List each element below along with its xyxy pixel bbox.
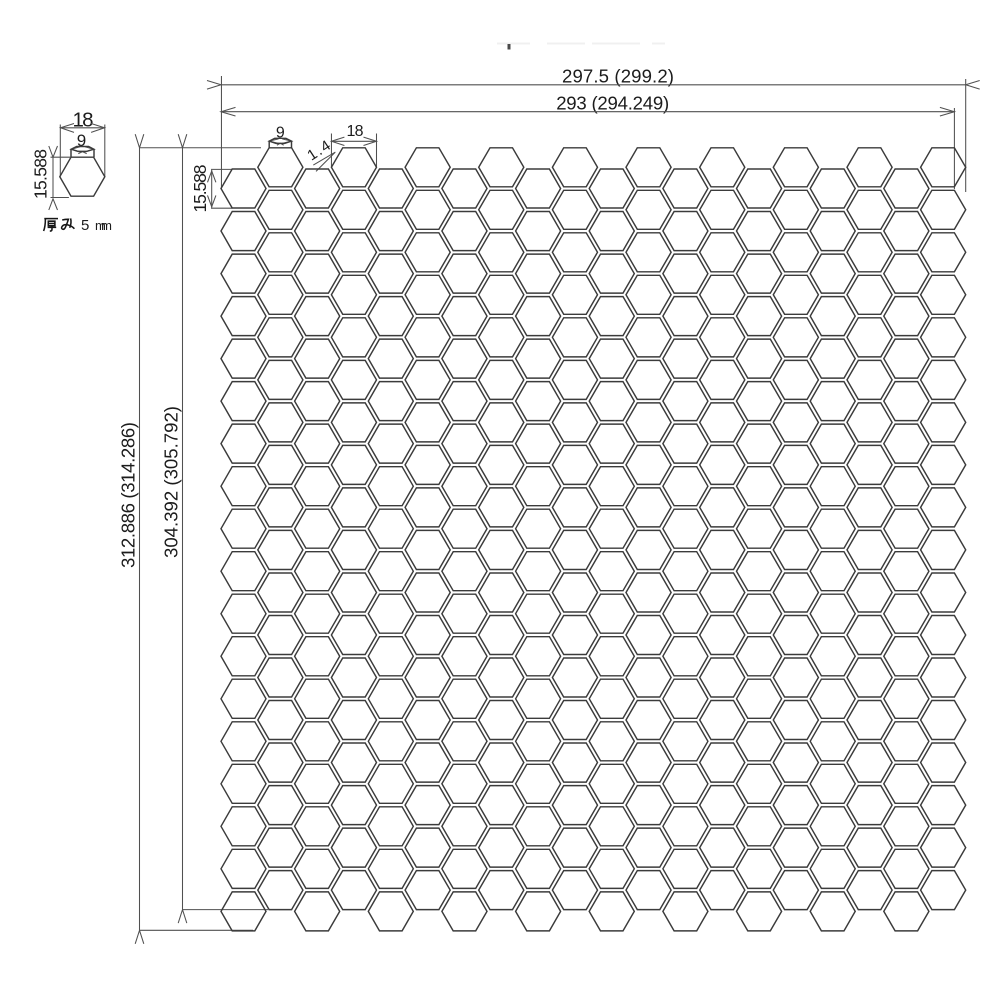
svg-text:15.588: 15.588 xyxy=(31,149,51,199)
svg-text:297.5 (299.2): 297.5 (299.2) xyxy=(562,65,674,86)
svg-text:293 (294.249): 293 (294.249) xyxy=(556,93,669,114)
svg-text:312.886 (314.286): 312.886 (314.286) xyxy=(118,422,139,568)
svg-text:1.4: 1.4 xyxy=(304,137,333,164)
svg-text:15.588: 15.588 xyxy=(190,165,210,213)
svg-text:18: 18 xyxy=(347,123,364,140)
svg-text:304.392 (305.792): 304.392 (305.792) xyxy=(161,406,182,558)
svg-text:mm: mm xyxy=(95,218,112,233)
svg-text:5: 5 xyxy=(81,217,89,234)
